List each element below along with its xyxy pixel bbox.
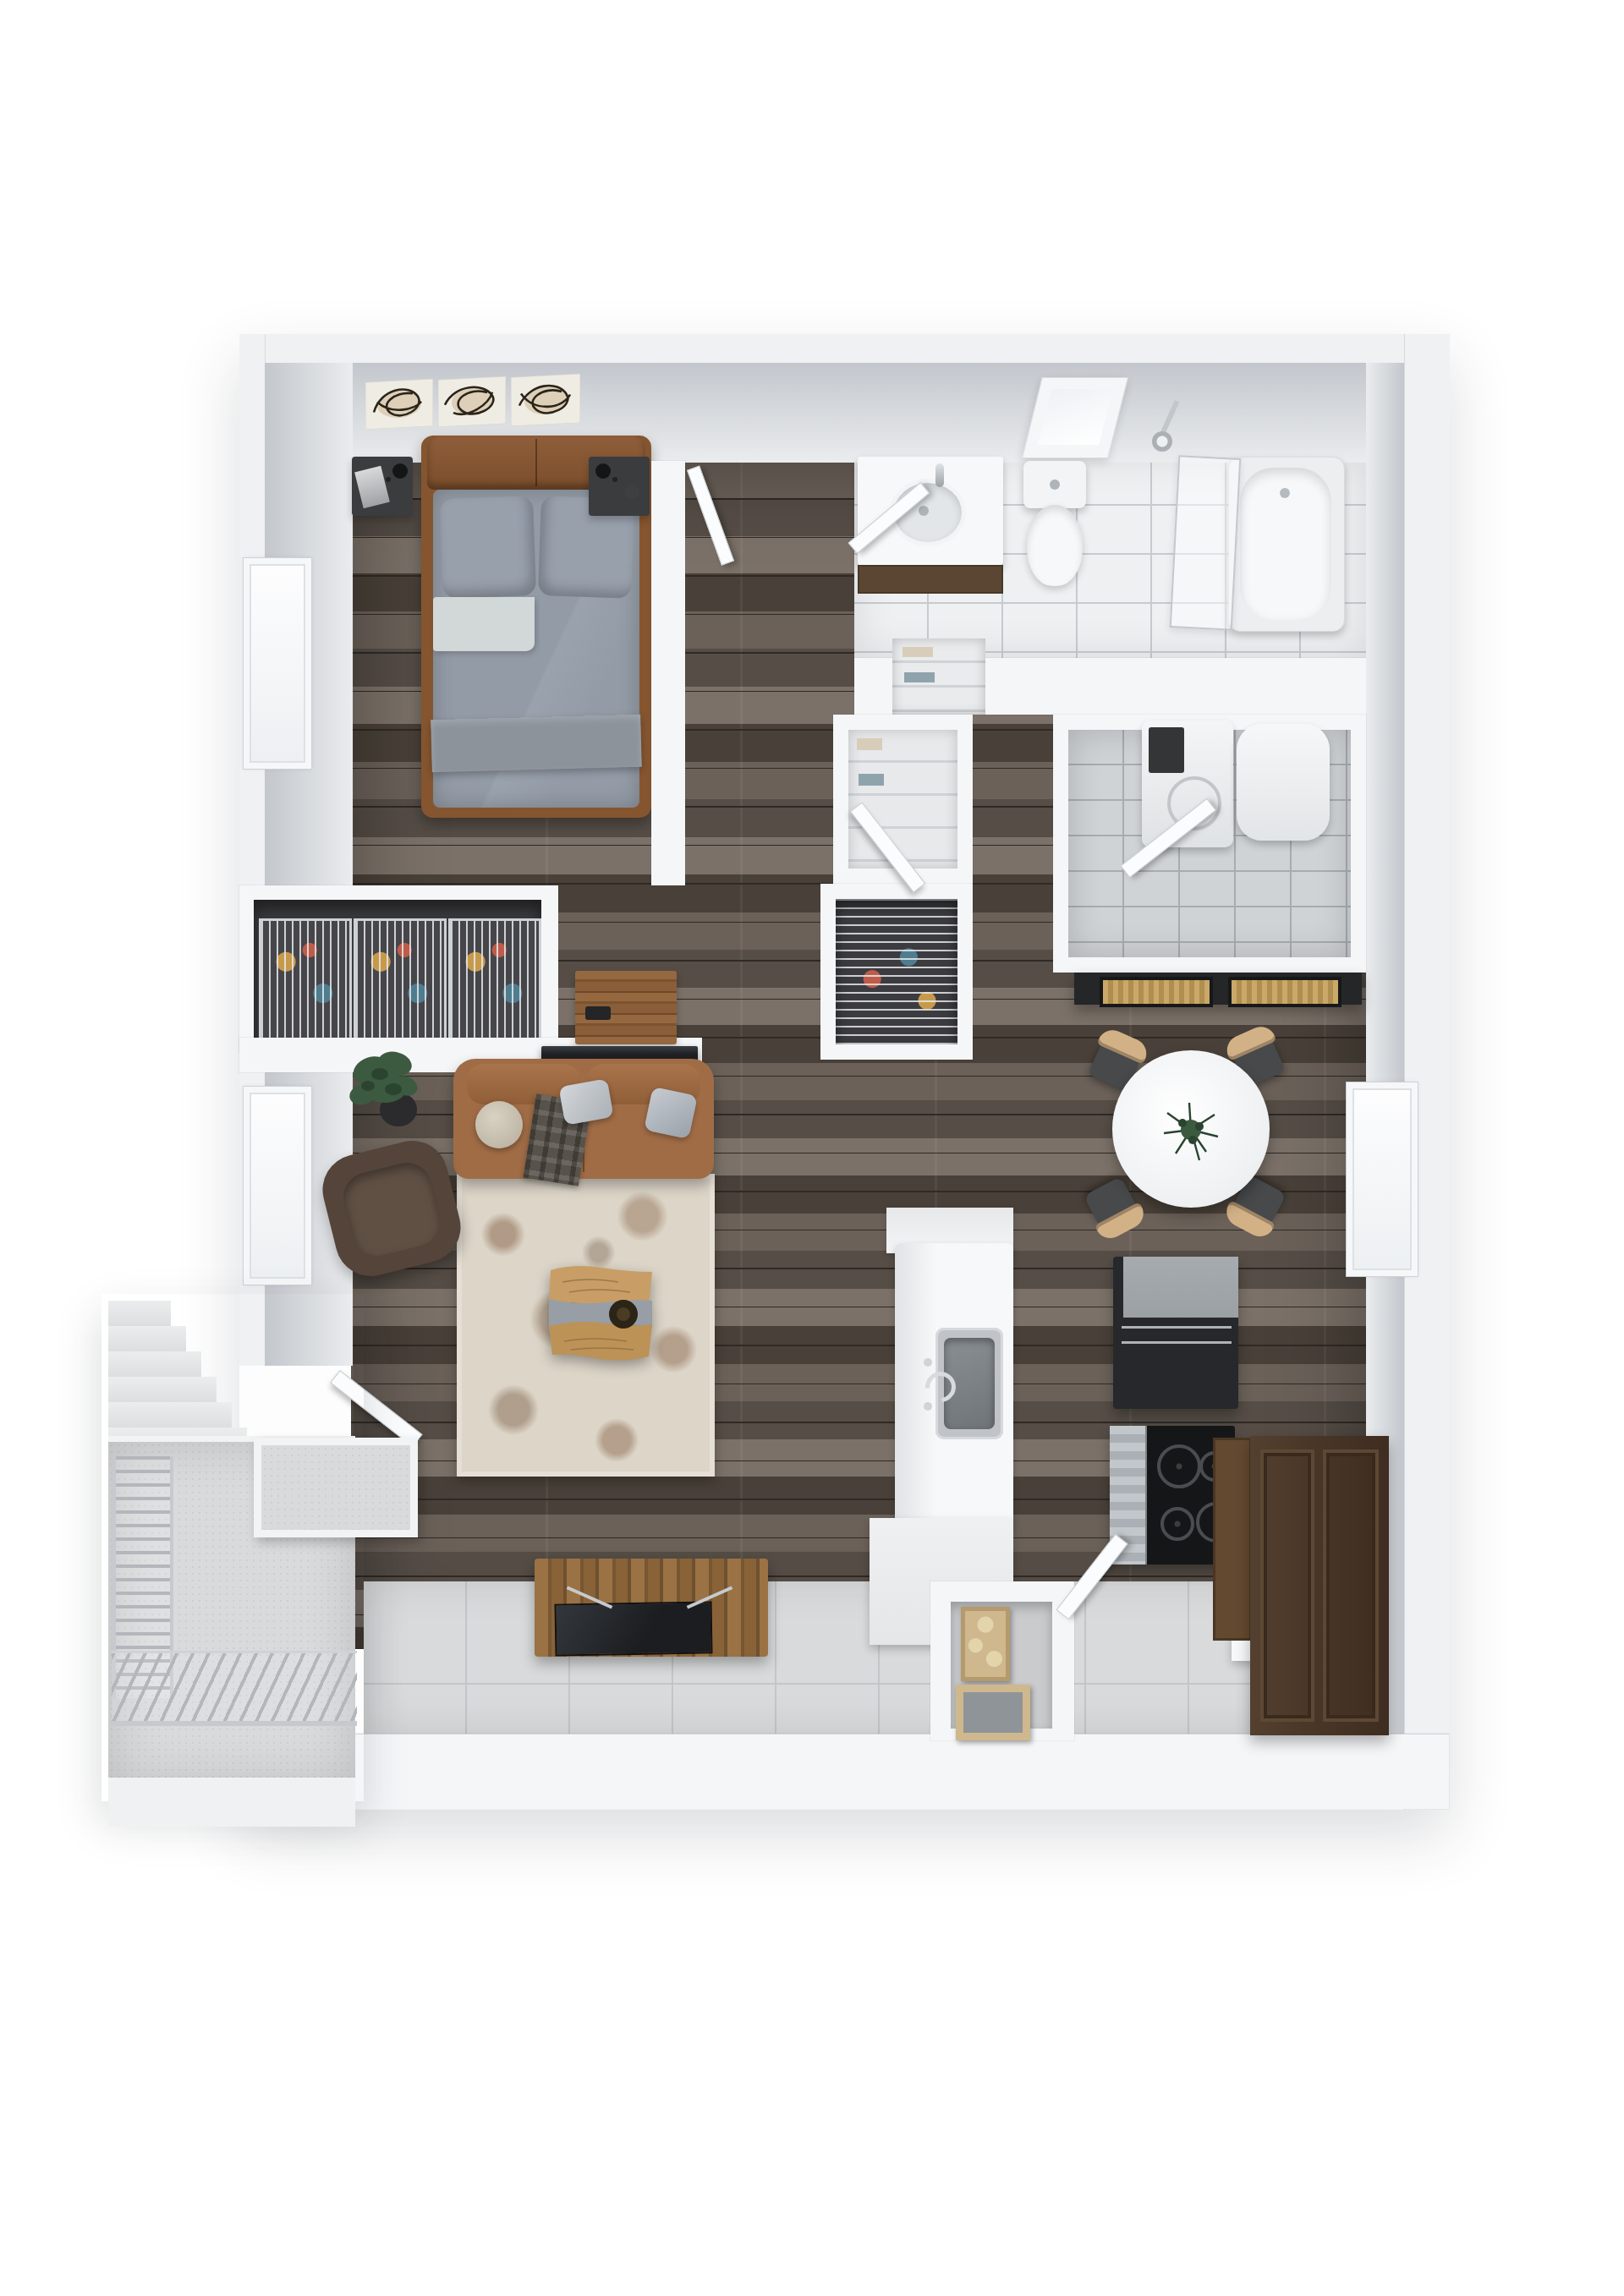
magazine [354,466,390,508]
south-wall [351,1734,1449,1809]
flush-button[interactable] [1050,479,1060,490]
pantry-door-panel [1323,1449,1379,1722]
refrigerator[interactable] [1113,1257,1238,1409]
balcony-railing-front [112,1651,357,1726]
entry-console [1074,973,1362,1005]
stored-items [859,774,884,786]
wooden-chair-base [956,1685,1030,1740]
pantry-side-cabinet [1213,1438,1252,1641]
coat-closet-interior [836,899,957,1044]
nightstand-left [352,457,413,516]
stair-step [108,1377,217,1404]
bed-sheet-fold [433,597,535,651]
wooden-step-chair [961,1607,1010,1681]
wall-art-panel-1 [365,379,433,430]
sink-drain [919,506,929,516]
woven-tray-1 [1100,977,1213,1007]
potted-plant [343,1045,436,1133]
wall-art-panel-3 [511,374,580,426]
bedroom-east-wall [651,461,685,885]
toilet-tank [1023,461,1086,508]
shower-glass-screen [1170,455,1242,631]
washer-control-panel[interactable] [1149,727,1184,773]
dining-window [1347,1082,1418,1276]
headboard-seam [535,439,537,486]
fridge-top-face [1123,1257,1238,1318]
armchair-cushion [338,1158,446,1262]
vanity-faucet [935,463,944,487]
live-edge-coffee-table [546,1262,656,1365]
skylight-glass [1038,389,1112,445]
pantry-door-panel [1260,1449,1314,1722]
wire-basket-unit-1 [259,918,352,1040]
stair-step [108,1402,232,1429]
woven-tray-2 [1228,977,1341,1007]
balcony-storage-box [254,1438,418,1537]
media-console [535,1559,768,1657]
vanity-cabinet [858,565,1003,594]
bed-foot-blanket [431,715,642,772]
balcony-lower-wall [108,1778,355,1827]
stair-step [108,1326,186,1353]
console-tv-panel [554,1601,712,1656]
towel-stack [904,672,935,682]
dresser [575,971,677,1044]
bed-pillow-left [440,496,536,599]
table-centerpiece-plant [1150,1089,1232,1170]
tub-drain [1280,488,1290,498]
wire-basket-unit-2 [354,918,447,1040]
faucet-handle[interactable] [924,1358,932,1367]
wall-art-panel-2 [438,376,506,427]
antler-decor [621,480,643,502]
fridge-handle[interactable] [1122,1341,1232,1344]
remote-on-dresser [585,1006,611,1020]
burner-small-left [1160,1507,1194,1541]
living-room-window [244,1087,311,1285]
linen-niche [892,638,985,715]
bathtub [1228,457,1345,632]
faucet-handle[interactable] [924,1402,932,1411]
east-wall [1404,334,1450,1810]
shower-rose [1152,431,1172,452]
stair-step [108,1301,171,1328]
stored-items [857,738,882,750]
north-wall [239,334,1449,364]
toilet [1023,461,1086,588]
island-sink [935,1328,1003,1439]
water-heater [1237,724,1330,841]
fridge-handle[interactable] [1122,1326,1232,1329]
nightstand-right [589,457,650,516]
plant-foliage [343,1045,436,1133]
shower-head [1144,394,1191,462]
round-throw-pillow [475,1101,523,1148]
towel-stack [903,647,933,657]
gray-pillow [644,1087,698,1139]
table-lamp-right [595,463,611,479]
bedroom-window [244,558,311,769]
hall-closet-interior [848,730,957,869]
wire-basket-unit-3 [448,918,541,1040]
stair-step [108,1351,201,1378]
table-lamp-left [392,463,408,479]
pantry-cabinet[interactable] [1250,1436,1389,1735]
toilet-bowl [1027,505,1083,586]
burner-large-left [1157,1444,1201,1488]
vanity-counter [858,457,1003,565]
